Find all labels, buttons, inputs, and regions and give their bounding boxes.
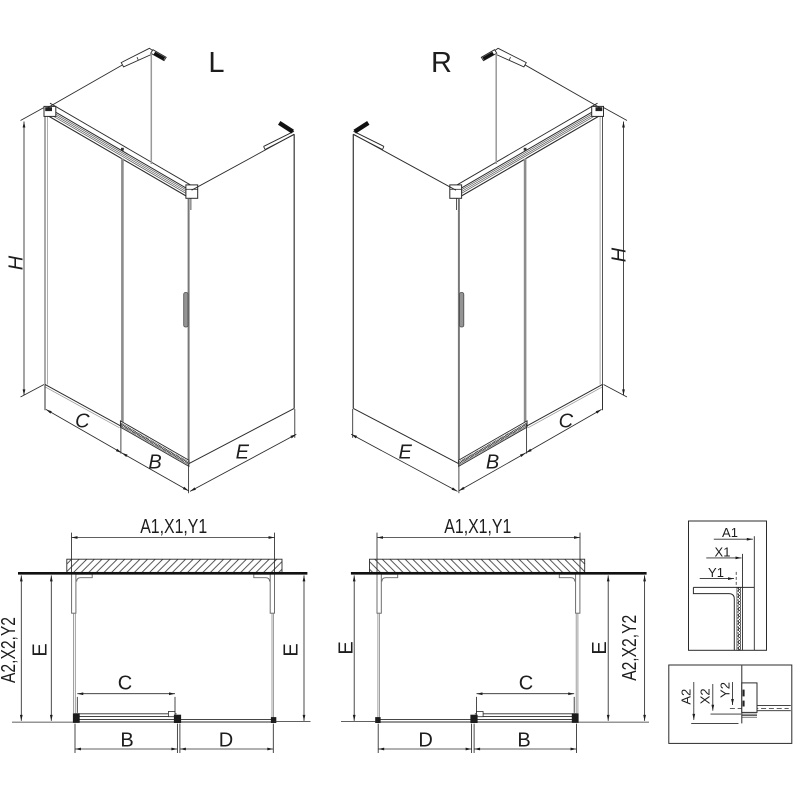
svg-text:A2,X2,Y2: A2,X2,Y2 [0,617,20,683]
svg-text:L: L [208,47,224,79]
svg-text:X2: X2 [698,688,713,704]
svg-text:C: C [118,672,132,694]
svg-text:E: E [236,442,250,464]
svg-text:B: B [148,451,161,473]
svg-text:A2: A2 [679,689,694,705]
svg-text:A1: A1 [722,525,738,540]
svg-text:C: C [75,411,90,433]
svg-text:E: E [399,442,413,464]
svg-text:D: D [418,729,432,751]
svg-text:H: H [609,247,631,262]
svg-text:E: E [336,641,358,654]
svg-text:E: E [589,641,611,654]
svg-text:A1,X1,Y1: A1,X1,Y1 [444,516,511,538]
svg-text:A1,X1,Y1: A1,X1,Y1 [140,516,207,538]
svg-text:Y1: Y1 [708,565,724,580]
svg-text:R: R [431,47,452,79]
svg-text:E: E [281,643,303,656]
svg-text:X1: X1 [715,545,731,560]
svg-text:B: B [486,451,499,473]
svg-text:D: D [219,729,233,751]
svg-text:B: B [517,729,530,751]
svg-text:H: H [6,255,28,270]
svg-text:Y2: Y2 [717,682,732,698]
svg-text:B: B [120,729,133,751]
svg-text:C: C [519,672,533,694]
svg-text:A2,X2,Y2: A2,X2,Y2 [619,615,641,681]
svg-text:C: C [559,411,574,433]
svg-text:E: E [30,643,52,656]
